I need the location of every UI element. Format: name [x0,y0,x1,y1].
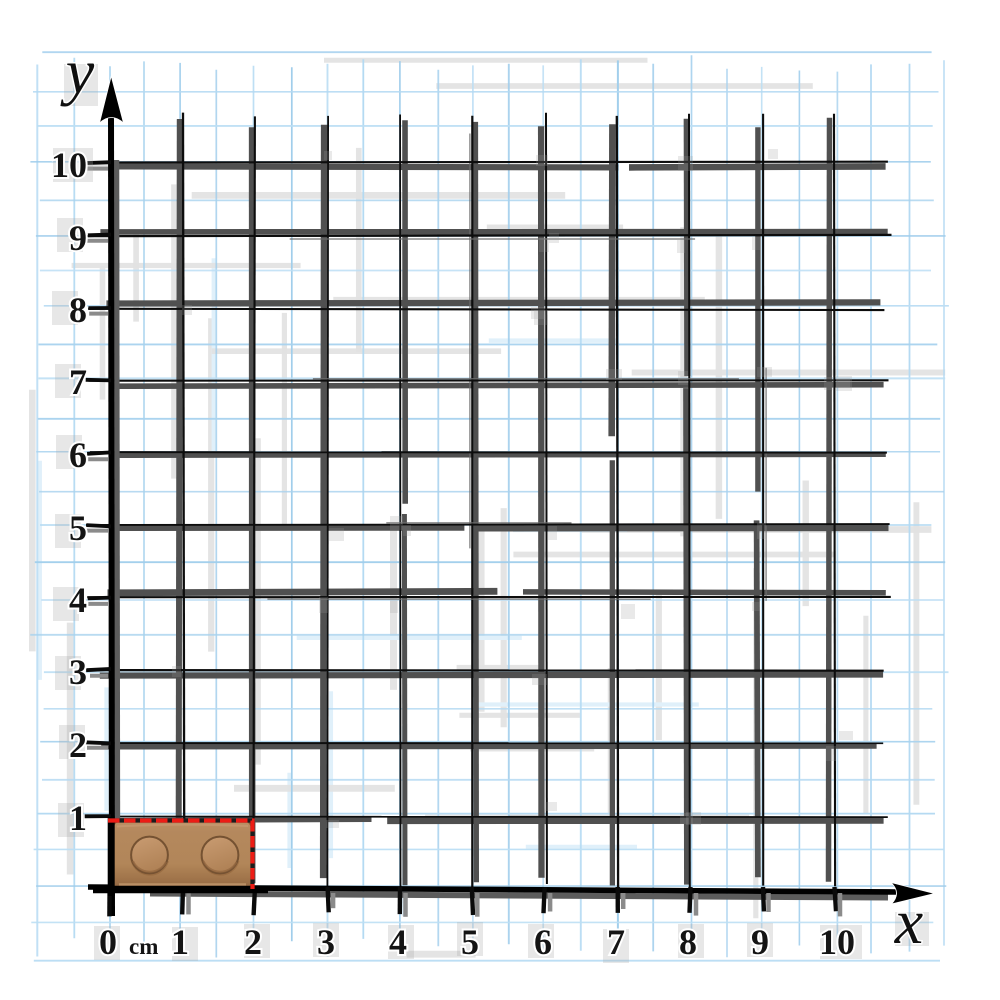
svg-text:1: 1 [171,922,189,962]
svg-text:5: 5 [69,508,87,548]
svg-text:2: 2 [69,725,87,765]
svg-text:y: y [60,36,95,107]
svg-text:x: x [894,886,923,957]
svg-text:8: 8 [679,922,697,962]
svg-text:cm: cm [129,934,158,959]
svg-text:1: 1 [69,798,87,838]
svg-text:4: 4 [69,580,87,620]
svg-text:4: 4 [389,922,407,962]
svg-text:2: 2 [244,922,262,962]
svg-text:6: 6 [534,922,552,962]
svg-text:3: 3 [317,922,335,962]
svg-text:7: 7 [69,362,87,402]
svg-text:10: 10 [819,922,855,962]
svg-text:10: 10 [51,145,87,185]
svg-text:0: 0 [99,922,117,962]
svg-text:9: 9 [751,922,769,962]
svg-text:3: 3 [69,652,87,692]
svg-text:5: 5 [461,922,479,962]
svg-text:6: 6 [69,435,87,475]
svg-text:7: 7 [607,922,625,962]
svg-text:9: 9 [69,218,87,258]
svg-text:8: 8 [69,290,87,330]
